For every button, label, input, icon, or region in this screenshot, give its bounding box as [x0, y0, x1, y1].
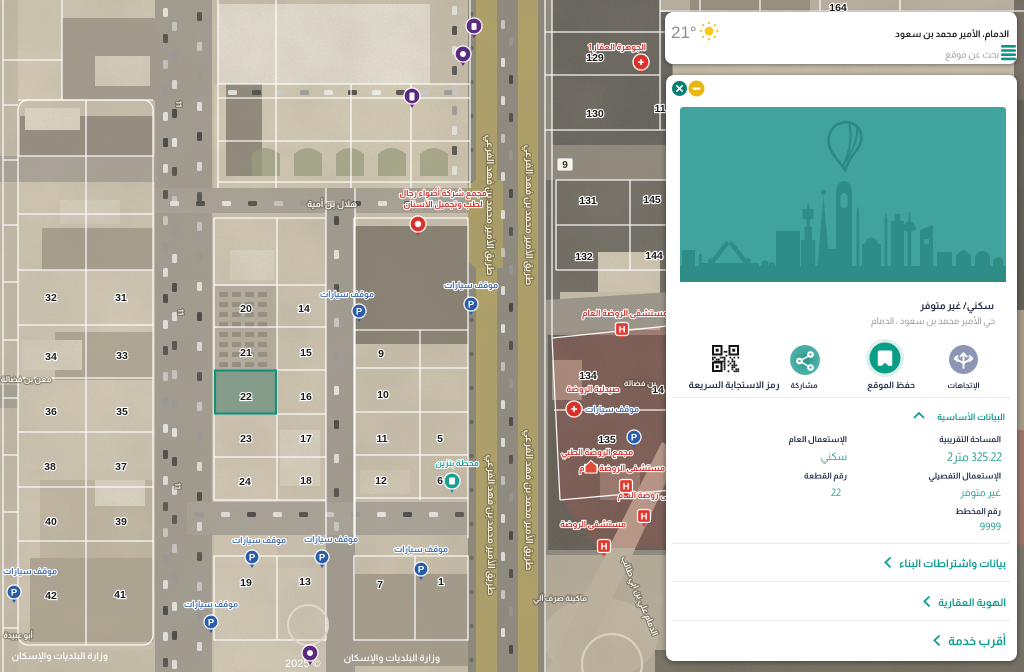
svg-text:21°: 21°: [671, 23, 697, 42]
